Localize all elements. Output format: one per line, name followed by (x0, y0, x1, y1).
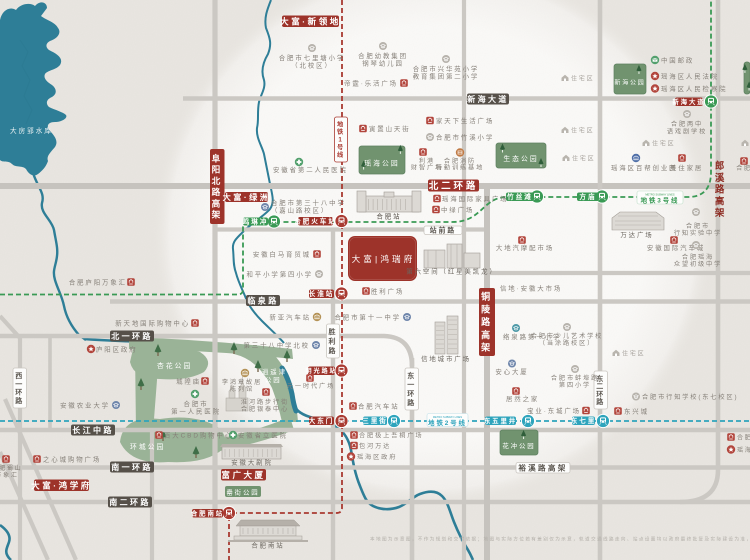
svg-text:李鸿章故居: 李鸿章故居 (222, 378, 262, 386)
svg-text:合肥庐阳万象汇: 合肥庐阳万象汇 (69, 278, 127, 287)
svg-text:第一人民医院: 第一人民医院 (171, 406, 221, 415)
svg-text:路: 路 (212, 186, 223, 197)
svg-text:地: 地 (337, 120, 345, 128)
svg-text:（当涂路校区）: （当涂路校区） (539, 339, 595, 347)
svg-text:大富·鸿学府: 大富·鸿学府 (31, 480, 92, 490)
svg-text:南一环路: 南一环路 (111, 462, 153, 472)
svg-text:合肥市七里塘小学: 合肥市七里塘小学 (279, 53, 346, 62)
svg-text:鸣琳冲: 鸣琳冲 (243, 217, 269, 226)
svg-text:溪: 溪 (715, 172, 727, 184)
svg-text:路: 路 (328, 346, 337, 355)
svg-text:新海大道: 新海大道 (672, 97, 705, 106)
svg-text:生态公园: 生态公园 (503, 154, 538, 163)
svg-text:合肥市少儿艺术学校: 合肥市少儿艺术学校 (531, 332, 603, 340)
svg-text:大地汽摩配市场: 大地汽摩配市场 (496, 243, 554, 252)
svg-text:安徽农业大学: 安徽农业大学 (60, 401, 110, 410)
svg-text:新海公园: 新海公园 (614, 78, 645, 86)
svg-text:万象汇: 万象汇 (0, 471, 19, 479)
svg-text:住宅区: 住宅区 (572, 155, 595, 163)
svg-text:第三十八中学北校: 第三十八中学北校 (244, 341, 311, 350)
svg-text:合肥市第十一中学: 合肥市第十一中学 (335, 313, 402, 322)
svg-text:美住家居: 美住家居 (670, 163, 703, 172)
svg-text:杏花公园: 杏花公园 (157, 361, 192, 370)
svg-text:百大CBD购物中心: 百大CBD购物中心 (164, 431, 233, 440)
svg-text:中国邮政: 中国邮政 (661, 56, 694, 65)
svg-text:合肥瑶海: 合肥瑶海 (682, 253, 714, 261)
svg-text:合肥极上吾桐广场: 合肥极上吾桐广场 (359, 432, 423, 440)
svg-text:合肥蜀山: 合肥蜀山 (0, 464, 23, 472)
svg-text:胜利广场: 胜利广场 (371, 287, 404, 296)
svg-text:高: 高 (481, 329, 493, 340)
svg-text:合肥市蚌埠路: 合肥市蚌埠路 (551, 374, 599, 382)
svg-text:特勤训练基地: 特勤训练基地 (436, 164, 484, 172)
svg-text:住宅区: 住宅区 (652, 140, 675, 148)
svg-text:地铁2号线: 地铁2号线 (428, 418, 467, 427)
svg-text:陈列馆: 陈列馆 (230, 385, 254, 393)
svg-text:（北校区）: （北校区） (291, 60, 333, 69)
svg-text:南二环路: 南二环路 (109, 497, 151, 507)
svg-text:METRO SUBWAY LINES: METRO SUBWAY LINES (645, 193, 674, 197)
svg-text:高: 高 (212, 197, 223, 208)
svg-text:安心大厦: 安心大厦 (495, 367, 528, 376)
svg-text:环城公园: 环城公园 (130, 443, 165, 451)
svg-text:架: 架 (211, 209, 223, 220)
svg-text:包河万达: 包河万达 (359, 442, 391, 450)
svg-text:路: 路 (407, 398, 416, 407)
svg-text:铁: 铁 (337, 128, 345, 136)
svg-text:架: 架 (480, 342, 493, 353)
svg-text:大房郢水库: 大房郢水库 (10, 126, 53, 135)
svg-text:信地·安徽大市场: 信地·安徽大市场 (500, 284, 562, 293)
svg-text:东七里: 东七里 (571, 416, 597, 425)
svg-text:北: 北 (212, 175, 223, 186)
svg-text:合肥市竹溪小学: 合肥市竹溪小学 (436, 133, 494, 142)
svg-text:合肥南站: 合肥南站 (190, 509, 224, 518)
svg-text:帝霆·乐活广场: 帝霆·乐活广场 (344, 79, 398, 88)
svg-text:公园: 公园 (265, 376, 282, 384)
svg-text:住宅区: 住宅区 (571, 127, 594, 135)
svg-text:安徽省立医院: 安徽省立医院 (238, 431, 288, 440)
svg-text:站前路: 站前路 (430, 226, 457, 235)
svg-text:明光路站: 明光路站 (305, 367, 337, 375)
svg-text:陵: 陵 (481, 303, 493, 314)
svg-text:万达广场: 万达广场 (620, 230, 653, 239)
svg-text:北二环路: 北二环路 (429, 180, 478, 192)
svg-text:长江中路: 长江中路 (72, 425, 114, 435)
svg-text:合肥幼教集团: 合肥幼教集团 (358, 51, 408, 60)
svg-text:安徽大剧院: 安徽大剧院 (231, 458, 273, 467)
svg-text:地铁3号线: 地铁3号线 (641, 196, 680, 205)
svg-text:富广大厦: 富广大厦 (221, 470, 265, 480)
svg-text:一: 一 (407, 382, 416, 389)
svg-text:长淮站: 长淮站 (309, 289, 335, 298)
svg-text:二: 二 (596, 383, 605, 391)
svg-text:竹丝滩: 竹丝滩 (506, 192, 533, 201)
svg-text:行知实验中学: 行知实验中学 (674, 229, 722, 237)
svg-text:合肥: 合肥 (736, 164, 750, 172)
svg-text:安徽省第二人民医院: 安徽省第二人民医院 (273, 165, 348, 174)
svg-text:路: 路 (715, 184, 727, 196)
svg-text:东: 东 (407, 371, 416, 380)
svg-text:东兴城: 东兴城 (624, 407, 649, 416)
svg-text:瑶海区百帮创业园: 瑶海区百帮创业园 (611, 163, 678, 172)
svg-text:号: 号 (337, 143, 345, 151)
svg-text:方庙: 方庙 (579, 192, 596, 201)
svg-text:新亚汽车站: 新亚汽车站 (269, 313, 311, 322)
svg-text:（嘉山路校区）: （嘉山路校区） (271, 205, 329, 214)
svg-text:瑶海公园: 瑶海公园 (364, 159, 399, 168)
svg-text:一: 一 (15, 381, 24, 388)
svg-text:花冲公园: 花冲公园 (502, 441, 535, 450)
svg-text:线: 线 (337, 151, 345, 159)
svg-text:合肥市行知学校(东七校区): 合肥市行知学校(东七校区) (642, 393, 738, 401)
svg-text:合肥南站: 合肥南站 (251, 541, 284, 550)
svg-text:瑶海区: 瑶海区 (737, 446, 750, 454)
svg-text:合肥站: 合肥站 (377, 212, 402, 221)
svg-text:瑶海区人民法院: 瑶海区人民法院 (661, 72, 719, 81)
svg-text:信地城市广场: 信地城市广场 (421, 354, 471, 363)
svg-text:阜: 阜 (212, 152, 223, 163)
svg-text:郎: 郎 (715, 160, 727, 172)
svg-text:第六空间（红星美凯龙）: 第六空间（红星美凯龙） (406, 267, 497, 276)
svg-text:和平小学第四小学: 和平小学第四小学 (247, 270, 314, 279)
svg-text:钢琴幼儿园: 钢琴幼儿园 (362, 58, 404, 67)
svg-text:合肥市第三十八中学: 合肥市第三十八中学 (271, 198, 346, 207)
svg-text:路: 路 (15, 396, 24, 405)
svg-text:合肥市: 合肥市 (686, 222, 710, 230)
svg-text:罍街公园: 罍街公园 (226, 488, 259, 497)
svg-text:合肥两中: 合肥两中 (671, 120, 703, 128)
svg-text:住宅区: 住宅区 (571, 75, 594, 83)
svg-text:众望初级中学: 众望初级中学 (674, 260, 722, 268)
svg-text:裕溪路高架: 裕溪路高架 (517, 462, 567, 472)
svg-text:合肥东部: 合肥东部 (737, 434, 750, 442)
svg-text:北一环路: 北一环路 (111, 331, 153, 341)
svg-text:西: 西 (15, 372, 24, 380)
svg-text:铜: 铜 (481, 291, 493, 302)
svg-text:寅置山天街: 寅置山天街 (369, 124, 411, 133)
svg-text:环: 环 (15, 389, 24, 397)
svg-text:教育集团第二小学: 教育集团第二小学 (413, 71, 480, 80)
svg-text:住宅区: 住宅区 (622, 350, 645, 358)
svg-text:阳: 阳 (212, 165, 223, 175)
svg-text:合肥市: 合肥市 (184, 399, 209, 408)
svg-text:利: 利 (328, 336, 337, 345)
svg-text:瑶海国际家具广场: 瑶海国际家具广场 (442, 194, 509, 203)
svg-text:1: 1 (338, 137, 343, 144)
svg-text:逍遥津: 逍遥津 (262, 367, 287, 376)
svg-text:瑶海区人民检察院: 瑶海区人民检察院 (661, 84, 728, 93)
svg-text:大东门: 大东门 (309, 416, 335, 425)
svg-text:高: 高 (715, 195, 727, 207)
svg-text:第四小学: 第四小学 (559, 381, 591, 389)
svg-text:语戏剧学校: 语戏剧学校 (667, 127, 707, 135)
svg-text:大富·绿洲: 大富·绿洲 (223, 192, 271, 202)
svg-text:临泉路: 临泉路 (247, 295, 278, 305)
svg-text:城隍庙: 城隍庙 (176, 377, 201, 386)
svg-text:东五里井: 东五里井 (484, 416, 517, 425)
svg-text:合肥银泰中心: 合肥银泰中心 (241, 405, 289, 413)
svg-text:居然之家: 居然之家 (506, 394, 539, 403)
svg-text:架: 架 (714, 207, 727, 219)
svg-text:宝业·东城广场: 宝业·东城广场 (527, 406, 581, 415)
svg-text:胜: 胜 (327, 327, 337, 336)
svg-text:庐阳区政府: 庐阳区政府 (96, 345, 138, 354)
svg-text:大富|鸿瑞府: 大富|鸿瑞府 (352, 253, 416, 264)
svg-text:METRO SUBWAY LINES: METRO SUBWAY LINES (433, 415, 462, 419)
svg-text:元一时代广场: 元一时代广场 (287, 382, 335, 390)
svg-text:路: 路 (596, 397, 605, 406)
svg-text:环: 环 (407, 390, 416, 398)
svg-text:之心城购物广场: 之心城购物广场 (43, 455, 101, 464)
svg-text:安徽白马育贸城: 安徽白马育贸城 (253, 250, 311, 259)
svg-text:大富·新领地: 大富·新领地 (280, 16, 341, 26)
svg-text:合肥市兴华苑小学: 合肥市兴华苑小学 (413, 64, 480, 73)
svg-text:合肥汽车站: 合肥汽车站 (358, 402, 400, 411)
svg-text:合肥火车站: 合肥火车站 (293, 217, 337, 226)
svg-text:新海大道: 新海大道 (467, 94, 509, 104)
svg-text:淮河路步行街: 淮河路步行街 (241, 398, 289, 406)
svg-text:新天地国际购物中心: 新天地国际购物中心 (115, 319, 190, 328)
svg-text:瑶海区政府: 瑶海区政府 (357, 453, 397, 461)
svg-text:家天下生活广场: 家天下生活广场 (436, 116, 494, 125)
svg-text:本地图为示意图，不作为规划和交付依据；地图与实际方位若有差别: 本地图为示意图，不作为规划和交付依据；地图与实际方位若有差别仅为示意，轨道交通线… (370, 536, 750, 543)
svg-text:三里街: 三里街 (362, 416, 388, 425)
svg-text:路: 路 (481, 316, 493, 327)
svg-text:中绿广场: 中绿广场 (441, 205, 474, 214)
svg-text:环: 环 (596, 390, 605, 398)
